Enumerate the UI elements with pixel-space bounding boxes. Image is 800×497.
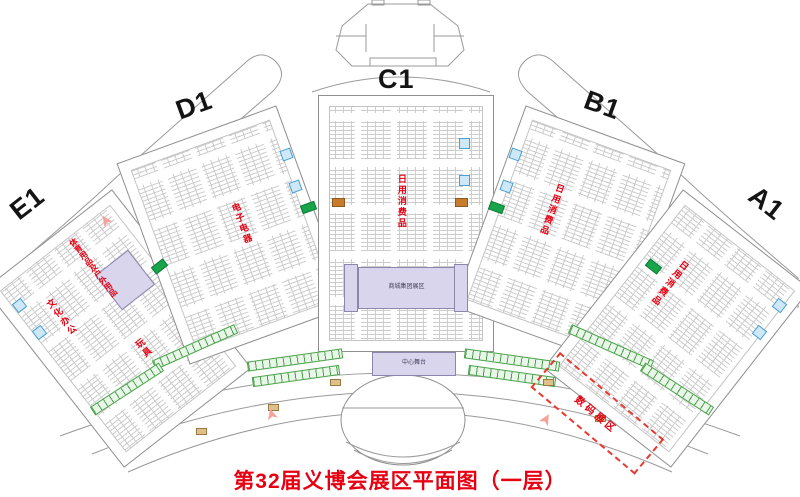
hall-label-c1: C1 bbox=[378, 66, 415, 93]
central-exhibit-area: 商城集团展区 bbox=[358, 267, 455, 309]
central-exhibit-wing-left bbox=[344, 264, 358, 312]
floor-plan-canvas: E1 D1 C1 B1 A1 日用消费品 电子电器 日用消费品 日用消费品 体育… bbox=[0, 0, 800, 497]
restroom-icon bbox=[459, 138, 470, 149]
central-exhibit-wing-right bbox=[454, 264, 468, 312]
dashed-zone-label: 数码展区 bbox=[573, 391, 622, 436]
central-forum-oval bbox=[341, 375, 465, 465]
stage-area: 中心舞台 bbox=[372, 352, 456, 376]
path-marker bbox=[330, 379, 341, 386]
service-orange-marker bbox=[332, 198, 345, 207]
restroom-icon bbox=[459, 175, 470, 186]
category-label-c1: 日用消费品 bbox=[396, 174, 406, 229]
service-orange-marker bbox=[455, 198, 468, 207]
path-marker bbox=[196, 428, 207, 435]
page-title: 第32届义博会展区平面图（一层） bbox=[0, 465, 800, 495]
north-lobby-outline bbox=[336, 4, 464, 66]
